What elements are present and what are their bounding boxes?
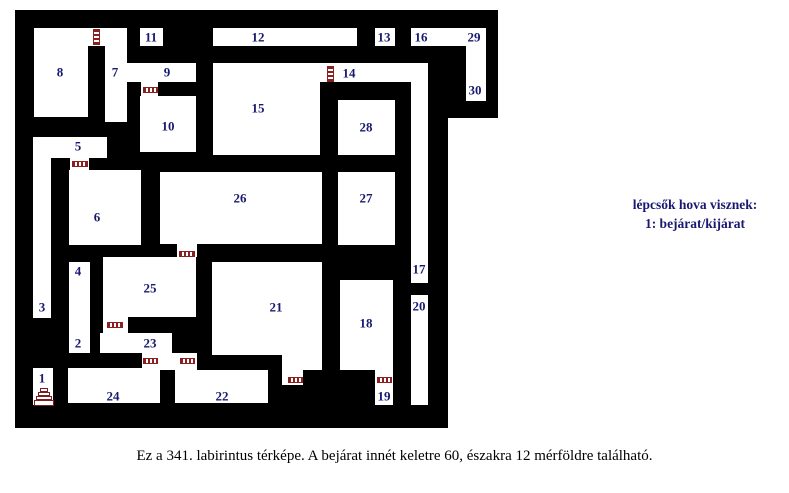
- door-icon: [180, 358, 195, 364]
- room-number-label: 30: [469, 84, 482, 97]
- door-icon: [288, 377, 303, 383]
- room-area: [34, 28, 127, 46]
- room-number-label: 7: [112, 66, 119, 79]
- entrance-stairs-icon: [34, 388, 54, 406]
- room-number-label: 20: [413, 300, 426, 313]
- room-area: [127, 63, 196, 82]
- map-caption: Ez a 341. labirintus térképe. A bejárat …: [0, 448, 789, 465]
- room-area: [282, 355, 322, 370]
- room-area: [160, 172, 322, 244]
- room-area: [305, 63, 428, 82]
- room-number-label: 12: [252, 31, 265, 44]
- room-area: [338, 172, 395, 245]
- room-area: [212, 262, 322, 355]
- room-number-label: 3: [39, 301, 46, 314]
- room-area: [100, 333, 172, 353]
- door-icon: [107, 322, 123, 328]
- room-area: [33, 158, 51, 318]
- door-icon: [179, 251, 195, 257]
- room-area: [69, 170, 141, 245]
- room-number-label: 14: [343, 67, 356, 80]
- room-number-label: 23: [144, 337, 157, 350]
- door-icon: [377, 377, 392, 383]
- room-number-label: 16: [415, 31, 428, 44]
- room-number-label: 17: [413, 263, 426, 276]
- room-number-label: 28: [360, 121, 373, 134]
- door-icon: [143, 358, 158, 364]
- room-number-label: 21: [270, 301, 283, 314]
- room-number-label: 10: [162, 120, 175, 133]
- room-number-label: 4: [75, 265, 82, 278]
- room-number-label: 24: [107, 390, 120, 403]
- stairs-step: [34, 400, 54, 406]
- room-area: [213, 28, 357, 46]
- room-number-label: 8: [57, 66, 64, 79]
- room-area: [34, 46, 88, 117]
- room-number-label: 27: [360, 192, 373, 205]
- door-icon: [327, 66, 334, 82]
- room-number-label: 18: [360, 317, 373, 330]
- door-icon: [72, 161, 88, 167]
- room-number-label: 11: [145, 31, 157, 44]
- room-area: [213, 63, 320, 155]
- stairs-legend: lépcsők hova visznek: 1: bejárat/kijárat: [588, 196, 789, 234]
- room-area: [105, 46, 127, 122]
- stairs-legend-entry: 1: bejárat/kijárat: [588, 215, 789, 234]
- room-number-label: 25: [144, 282, 157, 295]
- stairs-legend-title: lépcsők hova visznek:: [588, 196, 789, 215]
- door-icon: [93, 29, 100, 45]
- room-number-label: 22: [216, 390, 229, 403]
- room-number-label: 26: [234, 192, 247, 205]
- room-number-label: 1: [39, 372, 46, 385]
- room-area: [33, 137, 107, 158]
- room-number-label: 13: [378, 31, 391, 44]
- room-number-label: 9: [164, 66, 171, 79]
- room-number-label: 2: [75, 337, 82, 350]
- room-number-label: 5: [75, 140, 82, 153]
- room-number-label: 6: [94, 211, 101, 224]
- labyrinth-map-page: 1234567891011121314151617181920212223242…: [0, 0, 789, 493]
- room-area: [411, 63, 428, 283]
- room-number-label: 19: [378, 390, 391, 403]
- room-number-label: 15: [252, 102, 265, 115]
- room-number-label: 29: [468, 31, 481, 44]
- door-icon: [143, 87, 158, 93]
